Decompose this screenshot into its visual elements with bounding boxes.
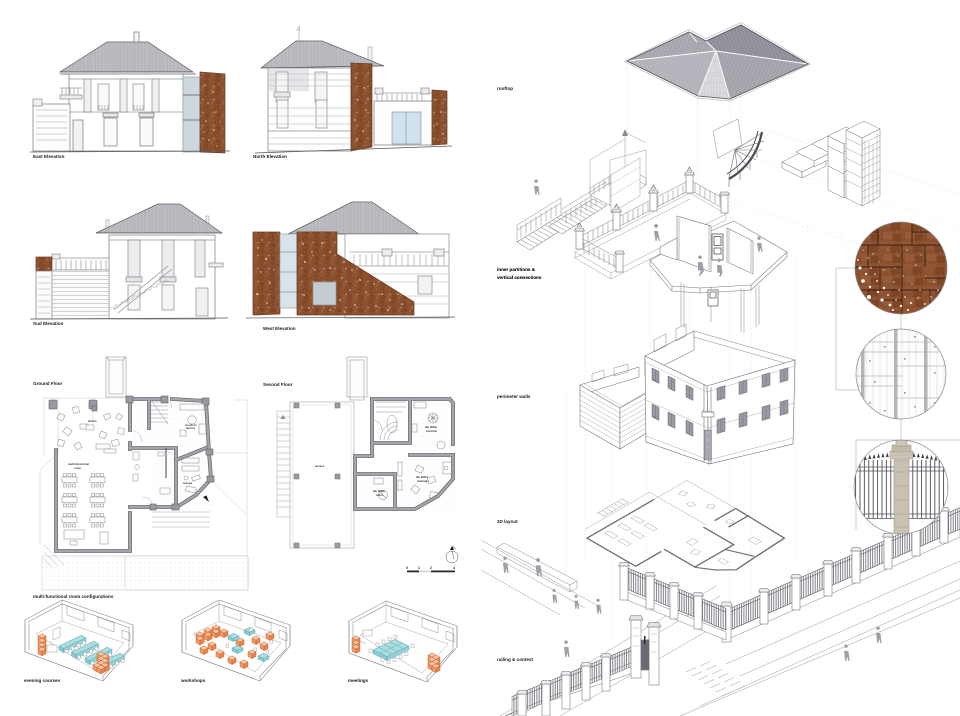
svg-text:workshops: workshops	[180, 678, 206, 683]
svg-text:toilet: toilet	[376, 493, 383, 497]
svg-text:2: 2	[430, 566, 432, 570]
svg-text:North Elevation: North Elevation	[253, 154, 287, 159]
svg-text:multi-functional room configur: multi-functional room configurations	[33, 594, 114, 599]
svg-text:vertical connections: vertical connections	[497, 275, 542, 280]
svg-text:meetings: meetings	[348, 678, 369, 683]
svg-text:tutorials: tutorials	[426, 429, 437, 433]
svg-text:East Elevation: East Elevation	[33, 154, 65, 159]
svg-text:inner partitions &: inner partitions &	[497, 267, 536, 272]
svg-text:terrace: terrace	[315, 464, 325, 468]
svg-text:0: 0	[406, 566, 408, 570]
svg-text:Ground Floor: Ground Floor	[33, 381, 63, 386]
svg-text:lounge: lounge	[183, 481, 193, 485]
svg-text:evening courses: evening courses	[24, 678, 61, 683]
svg-text:room: room	[74, 466, 82, 470]
svg-text:2D layout: 2D layout	[497, 519, 518, 524]
svg-text:West Elevation: West Elevation	[263, 326, 296, 331]
svg-text:atrium: atrium	[88, 419, 97, 423]
svg-text:factory: factory	[186, 426, 196, 430]
svg-text:Sud Elevation: Sud Elevation	[33, 321, 64, 326]
svg-text:Second Floor: Second Floor	[263, 382, 293, 387]
svg-text:1: 1	[418, 566, 420, 570]
svg-text:perimeter walls: perimeter walls	[497, 394, 531, 399]
svg-text:trainings: trainings	[417, 479, 429, 483]
svg-text:4: 4	[453, 566, 455, 570]
svg-text:railing & context: railing & context	[497, 657, 533, 662]
svg-text:rooftop: rooftop	[497, 86, 513, 91]
